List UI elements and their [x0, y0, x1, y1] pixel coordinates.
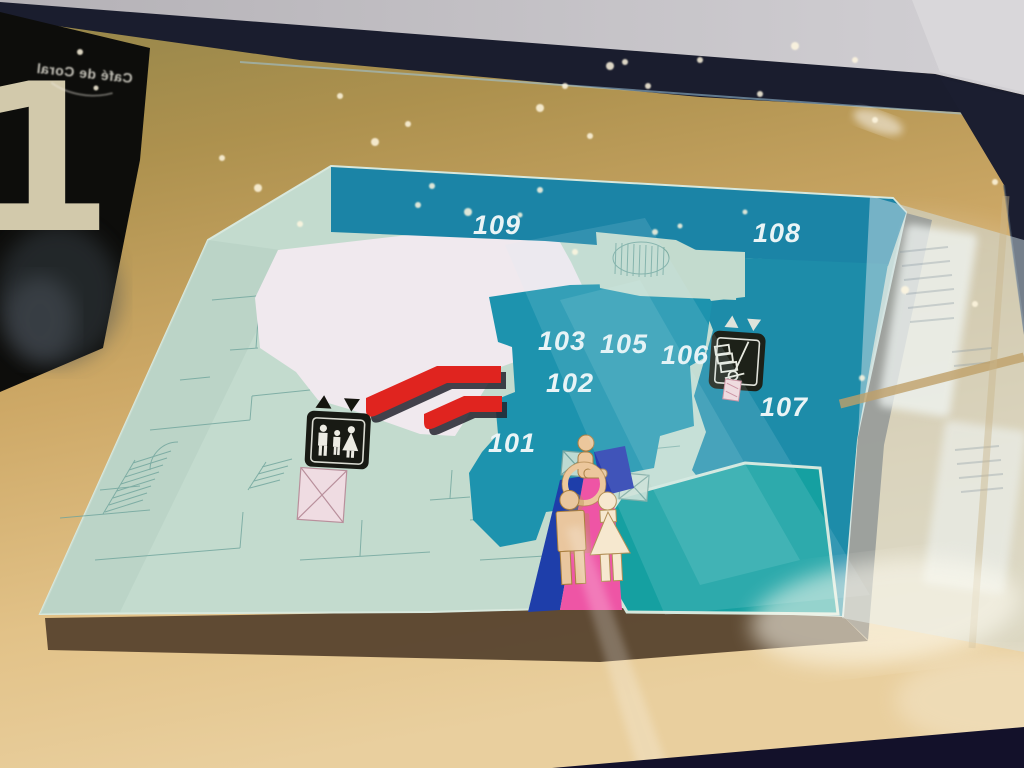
panel-reflection-2: [4, 276, 76, 364]
photo-of-floor-map-sign: 1 Café de Coral: [0, 0, 1024, 768]
unit-label-107: 107: [760, 392, 809, 422]
unit-label-108: 108: [753, 218, 801, 248]
unit-label-101: 101: [488, 428, 536, 458]
elevator-shaft-icon-main: [297, 467, 347, 522]
scene-canvas: 1 Café de Coral: [0, 0, 1024, 768]
unit-label-109: 109: [473, 210, 521, 240]
